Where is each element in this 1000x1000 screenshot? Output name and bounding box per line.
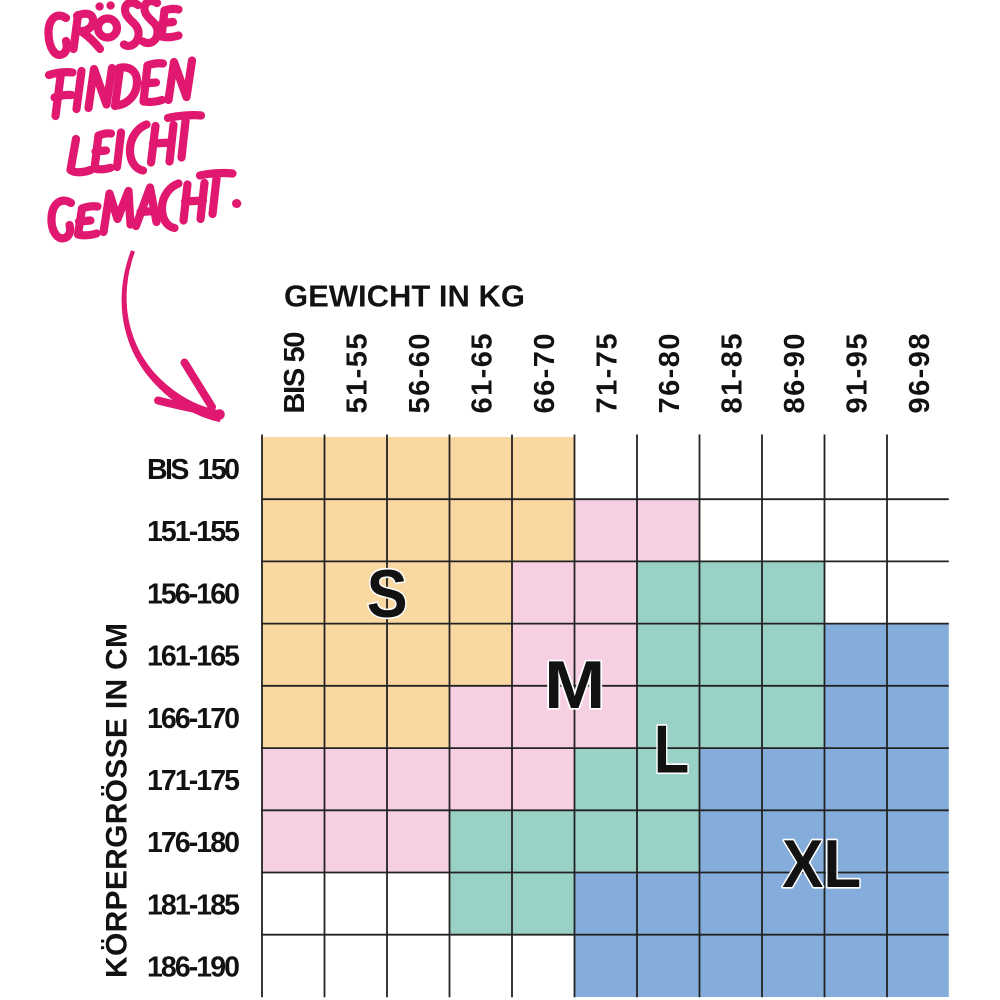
svg-text:L: L (654, 712, 689, 787)
svg-text:171-175: 171-175 (147, 765, 240, 797)
svg-text:61-65: 61-65 (467, 334, 499, 414)
svg-text:BIS 150: BIS 150 (147, 454, 240, 486)
svg-text:86-90: 86-90 (779, 334, 811, 414)
svg-text:71-75: 71-75 (592, 334, 624, 414)
svg-text:S: S (367, 555, 408, 632)
svg-text:186-190: 186-190 (147, 952, 240, 984)
svg-text:181-185: 181-185 (147, 889, 240, 921)
svg-text:151-155: 151-155 (147, 516, 240, 548)
svg-text:KÖRPERGRÖSSE IN CM: KÖRPERGRÖSSE IN CM (101, 623, 134, 978)
svg-text:76-80: 76-80 (654, 334, 686, 414)
svg-text:51-55: 51-55 (342, 334, 374, 414)
svg-text:GEWICHT IN KG: GEWICHT IN KG (284, 279, 525, 314)
svg-text:166-170: 166-170 (147, 703, 240, 735)
svg-text:96-98: 96-98 (904, 334, 936, 414)
svg-text:66-70: 66-70 (529, 334, 561, 414)
svg-text:56-60: 56-60 (404, 334, 436, 414)
svg-text:91-95: 91-95 (842, 334, 874, 414)
svg-text:BIS 50: BIS 50 (279, 332, 311, 414)
svg-text:176-180: 176-180 (147, 827, 240, 859)
svg-text:81-85: 81-85 (717, 334, 749, 414)
svg-text:XL: XL (782, 825, 861, 901)
svg-text:M: M (544, 647, 605, 723)
svg-text:156-160: 156-160 (147, 578, 240, 610)
svg-text:161-165: 161-165 (147, 641, 240, 673)
